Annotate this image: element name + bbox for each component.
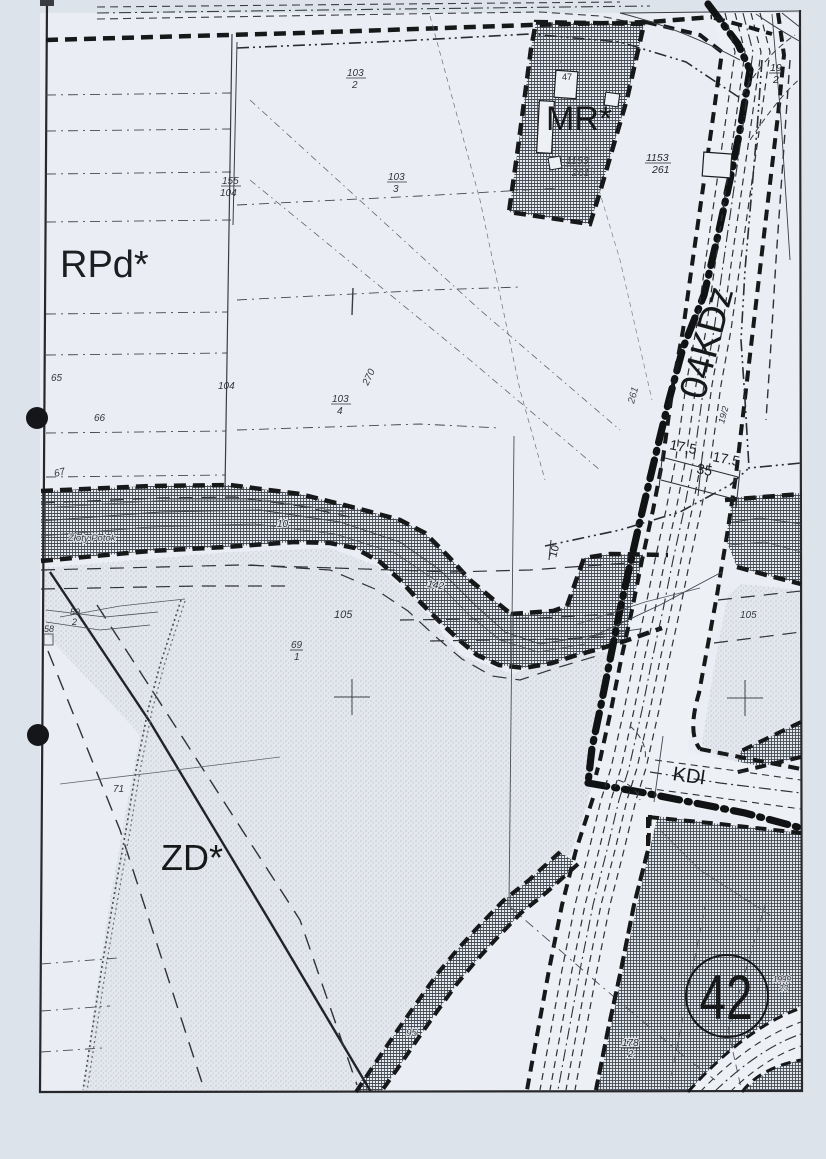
- svg-text:19: 19: [770, 62, 782, 74]
- svg-text:105: 105: [334, 609, 353, 621]
- svg-text:261: 261: [571, 167, 590, 179]
- svg-text:ZD*: ZD*: [161, 837, 223, 878]
- svg-text:103: 103: [332, 394, 349, 405]
- svg-text:47: 47: [562, 72, 572, 82]
- svg-text:261: 261: [651, 164, 670, 176]
- svg-text:3: 3: [393, 184, 399, 195]
- svg-text:105: 105: [740, 610, 757, 621]
- svg-text:2: 2: [772, 74, 779, 86]
- svg-text:59: 59: [70, 607, 80, 617]
- svg-text:103: 103: [388, 172, 405, 183]
- svg-text:104: 104: [220, 188, 237, 199]
- svg-text:2: 2: [71, 617, 77, 627]
- svg-text:42: 42: [700, 963, 753, 1033]
- svg-text:4: 4: [337, 406, 343, 417]
- svg-text:95: 95: [406, 1028, 418, 1039]
- svg-text:103: 103: [347, 68, 364, 79]
- svg-text:1153: 1153: [646, 152, 669, 164]
- svg-text:71: 71: [113, 784, 124, 795]
- svg-text:23: 23: [778, 984, 788, 993]
- svg-text:65: 65: [51, 373, 63, 384]
- svg-text:1999: 1999: [773, 975, 791, 984]
- svg-text:69: 69: [291, 640, 303, 651]
- svg-text:1: 1: [294, 652, 300, 663]
- svg-text:35: 35: [695, 460, 714, 479]
- svg-text:104: 104: [218, 381, 235, 392]
- svg-text:Złoty Potok: Złoty Potok: [67, 533, 117, 544]
- svg-text:2: 2: [351, 80, 358, 91]
- svg-text:1153: 1153: [566, 155, 589, 167]
- svg-text:KDl: KDl: [671, 763, 706, 789]
- svg-text:58: 58: [44, 624, 54, 634]
- svg-text:RPd*: RPd*: [60, 244, 149, 286]
- svg-text:178: 178: [622, 1038, 639, 1049]
- svg-text:155: 155: [222, 176, 239, 187]
- svg-text:2: 2: [627, 1049, 634, 1060]
- svg-text:66: 66: [94, 413, 106, 424]
- svg-text:10: 10: [277, 519, 289, 530]
- svg-text:MR*: MR*: [546, 100, 612, 138]
